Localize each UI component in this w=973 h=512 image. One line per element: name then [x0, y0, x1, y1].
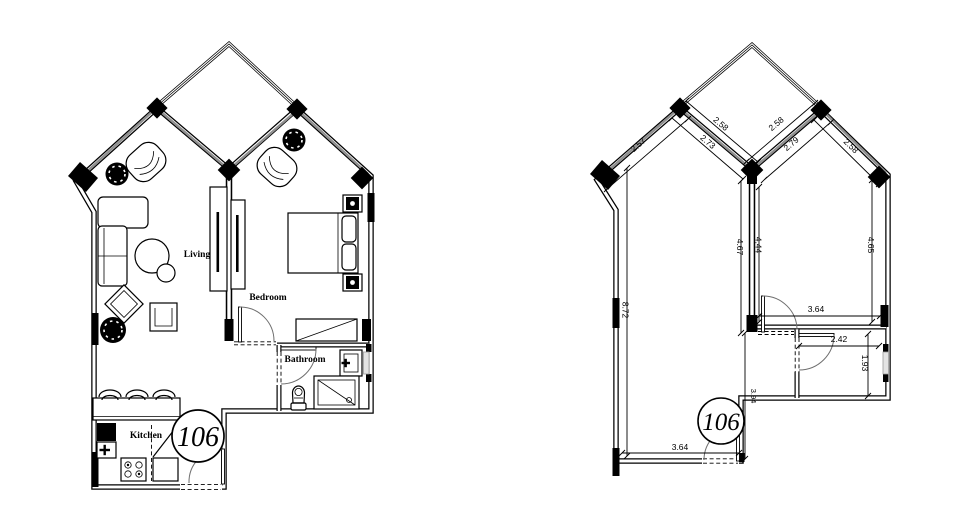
dim-hall-depth: 3.94: [749, 389, 758, 404]
dimension-plan: 2.57 2.73 2.58 2.58 2.79 2.58 4.67 4.44 …: [590, 45, 890, 476]
dim-bathroom-depth: 1.93: [860, 355, 870, 372]
dim-bedroom-width: 3.64: [808, 304, 825, 314]
dim-outer-right-slope: 2.58: [842, 136, 861, 155]
toilet: [291, 386, 306, 410]
bathroom-door: [281, 347, 316, 384]
bed: [288, 213, 358, 273]
tv-panel-bedroom: [231, 200, 245, 289]
bathroom-sink: [340, 350, 362, 376]
bathroom-window: [364, 352, 370, 374]
nightstand-top: [343, 195, 362, 212]
bedroom-door: [239, 307, 275, 342]
plant-table-left: [106, 163, 129, 186]
side-chair: [150, 303, 177, 331]
sofa: [98, 197, 148, 286]
dim-balcony-left: 2.58: [711, 115, 730, 133]
kitchen-label: Kitchen: [130, 431, 163, 441]
unit-number: 106: [702, 409, 740, 436]
lounge-chair-left: [121, 137, 171, 186]
living-label: Living: [184, 250, 211, 260]
dim-living-depth: 4.67: [735, 239, 745, 256]
floor-plan-drawing: Living Bedroom Bathroom Kitchen 106: [0, 0, 973, 512]
balcony-railing: [157, 44, 297, 107]
tv-panel-living: [210, 187, 227, 291]
bedroom-label: Bedroom: [249, 293, 286, 303]
kitchen-sink: [97, 442, 116, 458]
dim-left-wall: 8.72: [621, 302, 631, 319]
floorplan-canvas: Living Bedroom Bathroom Kitchen 106: [0, 0, 973, 512]
plant-table-right: [283, 129, 306, 152]
plant-table-lower: [100, 317, 126, 343]
bathroom-window: [883, 352, 889, 374]
unit-number: 106: [177, 422, 219, 453]
coffee-table: [135, 239, 175, 282]
furnished-plan: Living Bedroom Bathroom Kitchen 106: [68, 44, 375, 491]
dim-bedroom-depth-right: 4.65: [866, 237, 876, 254]
bench: [296, 319, 357, 341]
unit-badge: 106: [172, 410, 224, 462]
dim-bedroom-depth-left: 4.44: [754, 237, 764, 254]
stove: [121, 458, 146, 481]
nightstand-bottom: [343, 274, 362, 291]
balcony-railing: [680, 45, 821, 108]
dim-bathroom-width: 2.42: [831, 334, 848, 344]
unit-badge: 106: [698, 398, 744, 444]
dim-kitchen-width: 3.64: [672, 442, 689, 452]
bathroom-door: [799, 334, 834, 371]
shower: [314, 376, 359, 409]
bathroom-label: Bathroom: [285, 355, 326, 365]
